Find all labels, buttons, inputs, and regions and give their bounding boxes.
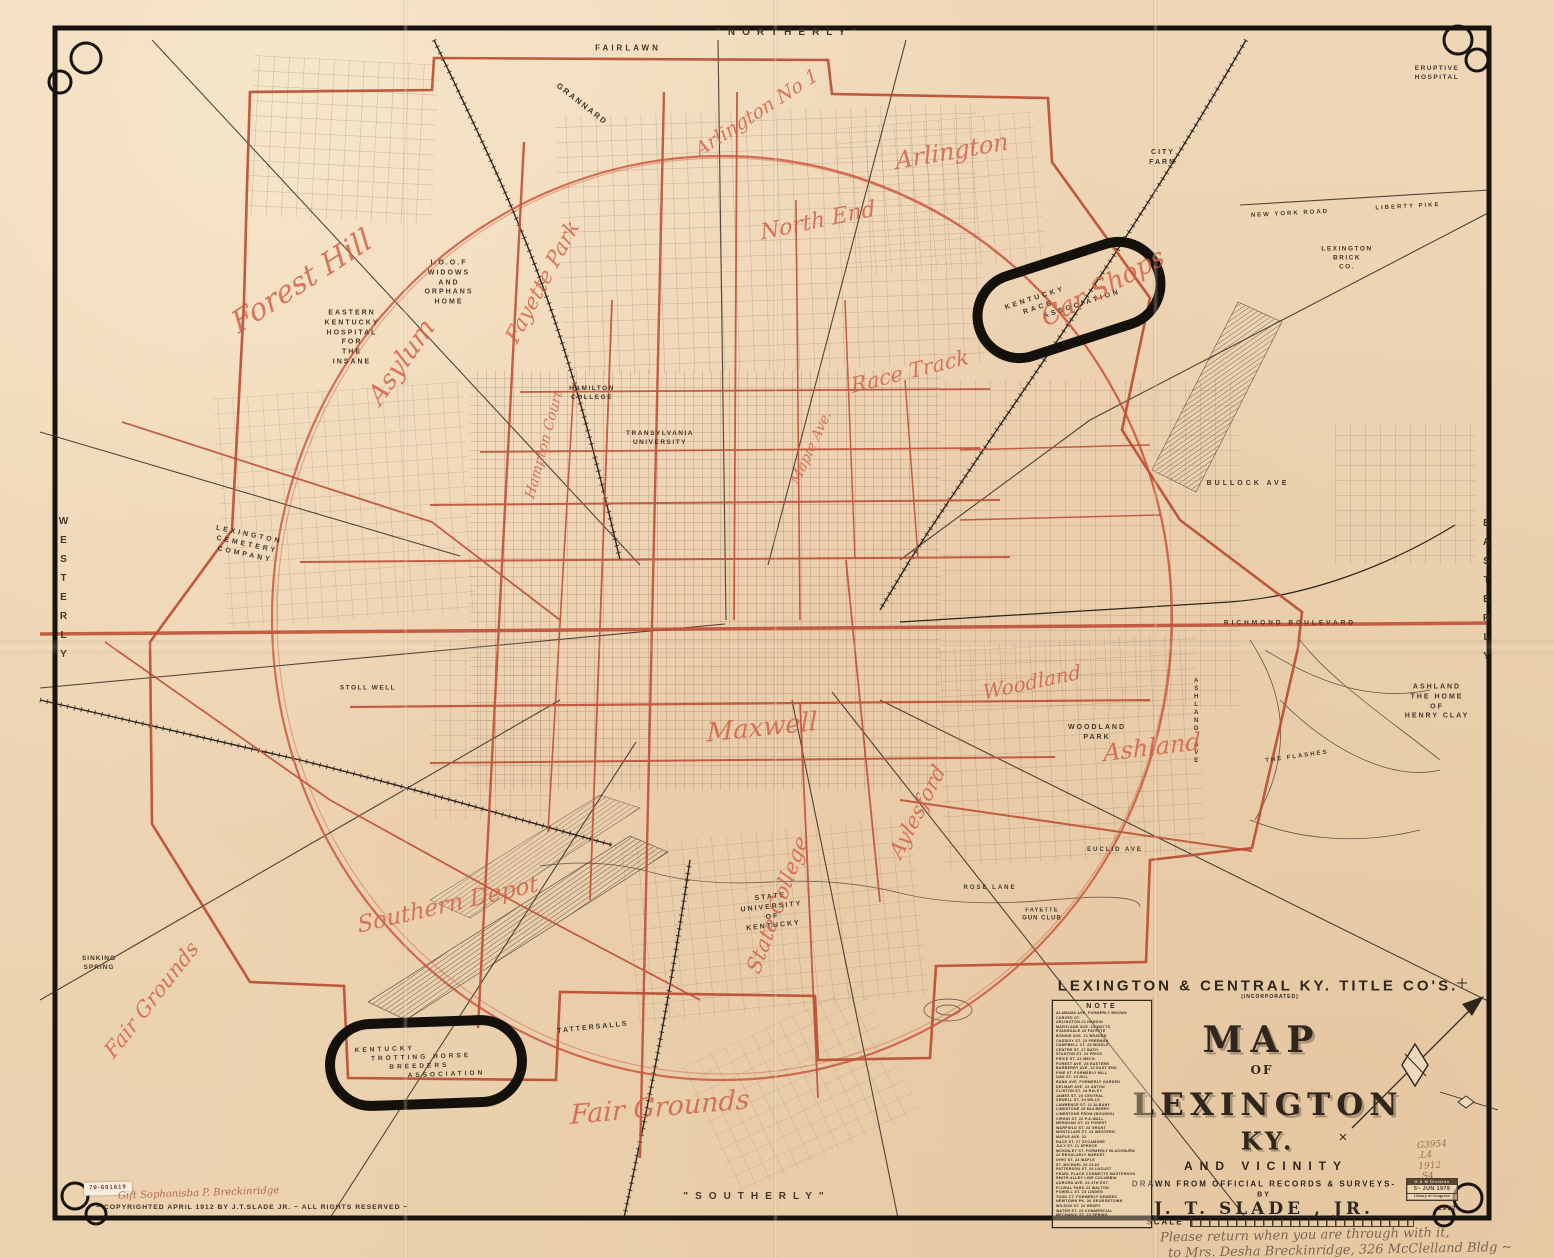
scale-label: SCALE [1146, 1218, 1183, 1227]
corner-year: 1912 [1438, 1205, 1456, 1212]
company-title: LEXINGTON & CENTRAL KY. TITLE CO'S. [1058, 978, 1459, 995]
title-city: LEXINGTON [1132, 1087, 1403, 1123]
scale-bar [1190, 1217, 1414, 1227]
stamp-date: 5~ JUN 1979 [1407, 1185, 1457, 1193]
note-title: NOTE [1056, 1003, 1148, 1010]
trotting-horse-track [329, 1019, 524, 1108]
note-rows: ALABAMA AVE. FORMERLY BROWNCURVED ST.ARL… [1056, 1011, 1148, 1218]
title-map-word: MAP [1203, 1019, 1322, 1061]
map-drawing [0, 0, 1554, 1258]
catalog-number-pencil: G3954 .L4 1912 .S4 [1417, 1139, 1450, 1182]
title-state: KY. [1241, 1127, 1296, 1156]
library-of-congress-stamp: G & M Division 5~ JUN 1979 Library of Co… [1406, 1178, 1458, 1201]
company-incorporated: (INCORPORATED) [1241, 994, 1299, 1000]
scanned-map-sheet: "NORTHERLY""SOUTHERLY"WESTERLYEASTERLYFA… [0, 0, 1554, 1258]
stamp-institution: Library of Congress [1407, 1193, 1457, 1200]
title-drawn-from: DRAWN FROM OFFICIAL RECORDS & SURVEYS- [1132, 1180, 1396, 1189]
title-vicinity: AND VICINITY [1184, 1159, 1348, 1173]
copyright-line: ~ COPYRIGHTED APRIL 1912 BY J.T.SLADE JR… [96, 1204, 408, 1211]
title-author: J. T. SLADE , JR. [1154, 1199, 1374, 1219]
note-row: MECHANIC ST. 23 SPRING [1056, 1213, 1148, 1218]
title-by: BY [1257, 1192, 1271, 1199]
note-box: NOTE ALABAMA AVE. FORMERLY BROWNCURVED S… [1052, 1000, 1152, 1228]
flashes-streets [1250, 640, 1440, 839]
title-of-word: OF [1251, 1063, 1274, 1077]
